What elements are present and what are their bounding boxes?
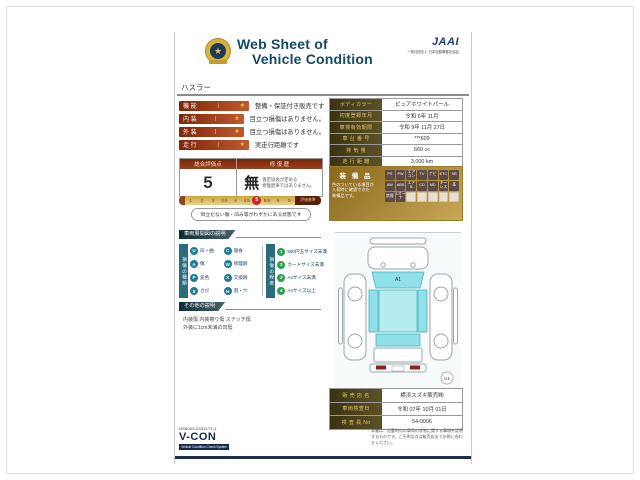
star-icon: ★: [210, 43, 226, 59]
equipment-badge-empty: [449, 192, 459, 202]
vcon-logo: V-CON: [179, 431, 216, 443]
separator: |: [217, 142, 218, 148]
legend-label: さび: [200, 288, 209, 294]
equipment-grid: PS PW エアコン TV ナビ ETC SR AW ABS エアB CD MD…: [382, 167, 462, 220]
vcon-tagline: Vehicle Condition Check System: [179, 444, 229, 450]
vehicle-condition-sheet: ★ Web Sheet of Vehicle Condition JAAI 一般…: [174, 32, 472, 464]
damage-size-icon: 1: [277, 248, 285, 256]
legend-item: P 変色: [190, 272, 224, 284]
car-unfolded-view: A1 U1: [338, 236, 458, 386]
title-line-2: Vehicle Condition: [252, 52, 373, 67]
rating-label: 走 行: [183, 140, 197, 149]
legend-item: X 交換跡: [224, 272, 258, 284]
vehicle-model-name: ハスラー: [181, 82, 211, 93]
divider: [177, 94, 469, 96]
table-row: 販 売 店 名 横浜スズキ販売㈱: [330, 389, 462, 403]
legend-label: 割・穴: [234, 288, 248, 294]
damage-size-list: 1 500円玉サイズ未満 2 カードサイズ未満 3 A4サイズ未満 4 A4サイ…: [275, 244, 327, 298]
title-line-1: Web Sheet of: [237, 37, 373, 52]
equipment-badge: 革: [449, 181, 459, 191]
scale-tick: 6: [273, 196, 284, 205]
legend-item: W 修理跡: [224, 258, 258, 270]
vehicle-diagram: A1 U1: [335, 232, 461, 389]
legend-item: 4 A4サイズ以上: [277, 285, 327, 297]
equipment-badge: AW: [385, 181, 395, 191]
dealer-value: 令和 07年 10月 01日: [382, 403, 462, 416]
repair-header: 修 復 歴: [237, 159, 322, 169]
overall-score: 5: [180, 169, 237, 196]
legend-label: 腐食: [234, 248, 243, 254]
rating-label-box: 走 行 | ★: [179, 140, 249, 150]
fine-print: 本書は、記載時点の車両の状態に関する事項を証明するものです。ご不明な点は販売店ま…: [371, 428, 463, 445]
dealer-value: 54-9006: [382, 416, 462, 429]
legend-banner: 車両展開図の説明: [179, 230, 321, 239]
repair-history: 無 査定協会が定める 修復歴車ではありません。: [237, 169, 322, 196]
star-icon: ★: [234, 128, 239, 135]
info-label: ボディカラー: [330, 99, 382, 110]
equipment-box: 装 備 品 色のついている項目が 入荷時に確認できた 装備品です。 PS PW …: [329, 166, 463, 221]
equipment-left: 装 備 品 色のついている項目が 入荷時に確認できた 装備品です。: [330, 167, 382, 220]
damage-type-icon: C: [224, 247, 232, 255]
star-icon: ★: [240, 141, 245, 148]
equipment-badge: ABS: [396, 181, 406, 191]
taillight-left: [376, 366, 386, 370]
rating-desc: 目立つ損傷はありません。: [250, 127, 325, 136]
legend-item: H 割・穴: [224, 285, 258, 297]
condition-note-bubble: 目立たない傷・凹み等がわずかにある状態です: [191, 208, 311, 221]
info-value: ***609: [382, 134, 462, 145]
rating-row-function: 機 能 | ★ 整備・保証付き販売です: [179, 100, 325, 111]
damage-legend: 損傷の種類 U 凹・曲 C 腐食 A 傷 W 修理跡 P 変色 X 交換跡 S: [179, 244, 327, 298]
repair-note-2: 修復歴車ではありません。: [262, 183, 315, 188]
rating-label: 外 装: [183, 127, 197, 136]
separator: |: [215, 116, 216, 122]
equipment-title: 装 備 品: [332, 170, 380, 180]
scale-tick: 5.5: [261, 196, 272, 205]
equipment-badge: SR: [449, 170, 459, 180]
bottom-rule: [175, 456, 471, 459]
equipment-badge: エアB: [406, 181, 416, 191]
equipment-badge: ナビ: [428, 170, 438, 180]
damage-type-icon: X: [224, 274, 232, 282]
damage-size-title: 損傷の程度: [266, 244, 275, 298]
dealer-table: 販 売 店 名 横浜スズキ販売㈱ 車両検査日 令和 07年 10月 01日 検 …: [329, 388, 463, 430]
repair-note: 査定協会が定める 修復歴車ではありません。: [262, 177, 315, 188]
rating-label: 内 装: [183, 114, 197, 123]
scale-tick: 4: [230, 196, 241, 205]
jaai-logo: JAAI 一般社団法人 日本自動車鑑定協会: [399, 36, 459, 54]
info-label: 車 台 番 号: [330, 134, 382, 145]
scale-caption: 評価基準: [295, 196, 321, 205]
repair-value: 無: [244, 172, 259, 193]
equipment-badge: 禁煙: [385, 192, 395, 202]
scale-tick: 1: [185, 196, 196, 205]
legend-label: 500円玉サイズ未満: [287, 249, 327, 255]
equipment-badge: ETC: [439, 170, 449, 180]
equipment-badge: 1オーナ: [396, 192, 406, 202]
jaai-subtext: 一般社団法人 日本自動車鑑定協会: [399, 49, 459, 54]
equipment-badge: TV: [417, 170, 427, 180]
emblem-ribbon: [209, 60, 227, 64]
legend-label: 交換跡: [234, 275, 248, 281]
vehicle-info-table: ボディカラー ピュアホワイトパール 初度登録年月 令和 6年 11月 車検有効期…: [329, 98, 463, 168]
scale-selected-score: 5: [252, 196, 261, 205]
damage-size-icon: 2: [277, 261, 285, 269]
equipment-badge-empty: [406, 192, 416, 202]
info-value: 令和 6年 11月: [382, 111, 462, 122]
other-notes: 内装傷 内装擦り傷 ステッチ傷 外装に1cm未満の凹傷: [183, 316, 251, 332]
rating-label-box: 内 装 | ★: [179, 114, 244, 124]
table-row: 車 台 番 号 ***609: [330, 134, 462, 146]
legend-label: 変色: [200, 275, 209, 281]
rating-label-box: 機 能 | ★: [179, 101, 249, 111]
legend-label: 傷: [200, 261, 205, 267]
rating-desc: 目立つ損傷はありません。: [250, 114, 325, 123]
damage-type-icon: P: [190, 274, 198, 282]
banner-line: [236, 237, 321, 239]
equipment-note-3: 装備品です。: [332, 193, 357, 198]
equipment-badge: PW: [396, 170, 406, 180]
score-header: 総合評価点: [180, 159, 237, 169]
rating-label: 機 能: [183, 101, 197, 110]
equipment-badge-empty: [417, 192, 427, 202]
repair-note-1: 査定協会が定める: [262, 177, 297, 182]
scale-tick: 4.5: [241, 196, 252, 205]
other-note-1: 内装傷 内装擦り傷 ステッチ傷: [183, 317, 251, 323]
evaluation-header: 総合評価点 修 復 歴: [180, 159, 322, 169]
damage-type-icon: U: [190, 247, 198, 255]
info-value: 令和 9年 11月 27日: [382, 122, 462, 133]
damage-spot-label: U1: [444, 376, 450, 381]
legend-label: A4サイズ以上: [287, 288, 315, 294]
legend-item: U 凹・曲: [190, 245, 224, 257]
damage-size-icon: 4: [277, 287, 285, 295]
equipment-badge: PS: [385, 170, 395, 180]
info-label: 初度登録年月: [330, 111, 382, 122]
tcvr-emblem-icon: ★: [205, 38, 231, 64]
damage-type-icon: S: [190, 287, 198, 295]
table-row: 初度登録年月 令和 6年 11月: [330, 111, 462, 123]
legend-item: 1 500円玉サイズ未満: [277, 246, 327, 258]
info-value: 660 cc: [382, 145, 462, 156]
rating-desc: 整備・保証付き販売です: [255, 101, 324, 110]
legend-item: A 傷: [190, 258, 224, 270]
legend-label: A4サイズ未満: [287, 275, 315, 281]
table-row: 車両検査日 令和 07年 10月 01日: [330, 403, 462, 417]
separator: |: [217, 103, 218, 109]
legend-item: 2 カードサイズ未満: [277, 259, 327, 271]
sheet-title: Web Sheet of Vehicle Condition: [237, 37, 373, 68]
separator: |: [215, 129, 216, 135]
legend-item: S さび: [190, 285, 224, 297]
legend-item: 3 A4サイズ未満: [277, 272, 327, 284]
table-row: ボディカラー ピュアホワイトパール: [330, 99, 462, 111]
damage-type-icon: W: [224, 260, 232, 268]
equipment-badge: CD: [417, 181, 427, 191]
rating-row-exterior: 外 装 | ★ 目立つ損傷はありません。: [179, 126, 325, 137]
rating-row-mileage: 走 行 | ★ 実走行距離です: [179, 139, 325, 150]
equipment-badge: MD: [428, 181, 438, 191]
info-value: ピュアホワイトパール: [382, 99, 462, 110]
legend-banner-label: 車両展開図の説明: [179, 230, 236, 239]
legend-label: カードサイズ未満: [287, 262, 324, 268]
evaluation-box: 総合評価点 修 復 歴 5 無 査定協会が定める 修復歴車ではありません。: [179, 158, 323, 197]
dealer-label: 検 査 員 No: [330, 416, 382, 429]
scale-tick: 3.5: [219, 196, 230, 205]
banner-line: [225, 309, 321, 311]
damage-size-icon: 3: [277, 274, 285, 282]
legend-label: 凹・曲: [200, 248, 214, 254]
rating-label-box: 外 装 | ★: [179, 127, 244, 137]
evaluation-body: 5 無 査定協会が定める 修復歴車ではありません。: [180, 169, 322, 196]
damage-type-title: 損傷の種類: [179, 244, 188, 298]
damage-marker: A1: [395, 277, 401, 283]
other-banner: その他の説明: [179, 302, 321, 311]
table-row: 排 気 量 660 cc: [330, 145, 462, 157]
legend-label: 修理跡: [234, 261, 248, 267]
divider: [262, 246, 263, 296]
rating-row-interior: 内 装 | ★ 目立つ損傷はありません。: [179, 113, 325, 124]
taillight-right: [410, 366, 420, 370]
table-row: 車検有効期限 令和 9年 11月 27日: [330, 122, 462, 134]
other-banner-label: その他の説明: [179, 302, 225, 311]
equipment-badge-empty: [439, 192, 449, 202]
equipment-note-2: 入荷時に確認できた: [332, 187, 370, 192]
rating-desc: 実走行距離です: [255, 140, 299, 149]
damage-type-icon: A: [190, 260, 198, 268]
info-label: 車検有効期限: [330, 122, 382, 133]
equipment-note: 色のついている項目が 入荷時に確認できた 装備品です。: [332, 182, 380, 198]
dealer-label: 車両検査日: [330, 403, 382, 416]
equipment-badge: エアコン: [406, 170, 416, 180]
info-label: 排 気 量: [330, 145, 382, 156]
damage-type-icon: H: [224, 287, 232, 295]
dealer-label: 販 売 店 名: [330, 389, 382, 402]
equipment-badge: キーレス: [439, 181, 449, 191]
jaai-wordmark: JAAI: [399, 36, 459, 48]
dealer-value: 横浜スズキ販売㈱: [382, 389, 462, 402]
legend-item: C 腐食: [224, 245, 258, 257]
damage-type-grid: U 凹・曲 C 腐食 A 傷 W 修理跡 P 変色 X 交換跡 S さび H: [188, 244, 259, 298]
evaluation-scale: 1 2 3 3.5 4 4.5 5 5.5 6 S 評価基準: [179, 196, 321, 205]
other-note-2: 外装に1cm未満の凹傷: [183, 325, 232, 331]
scale-tick: 2: [196, 196, 207, 205]
star-icon: ★: [234, 115, 239, 122]
star-icon: ★: [240, 102, 245, 109]
scale-tick: 3: [207, 196, 218, 205]
equipment-badge-empty: [428, 192, 438, 202]
scale-tick: S: [284, 196, 295, 205]
